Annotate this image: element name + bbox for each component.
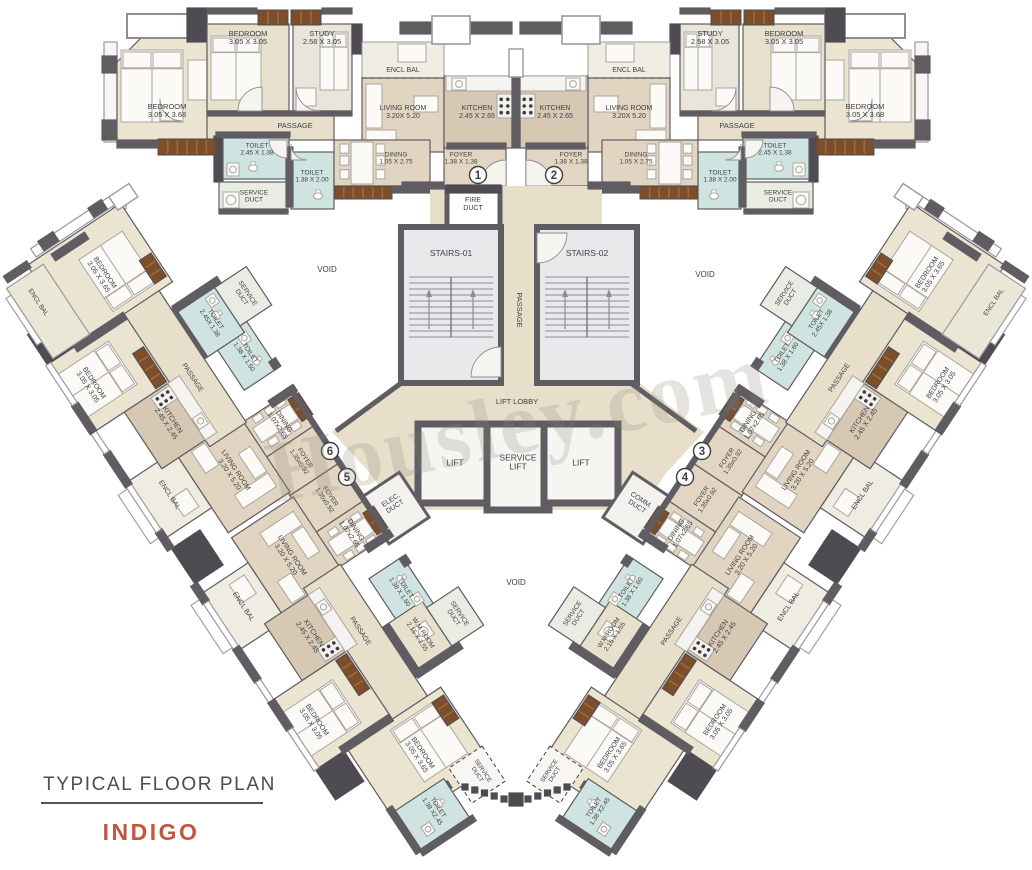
svg-text:1: 1 (475, 170, 482, 182)
svg-text:BEDROOM3.05 X 3.05: BEDROOM3.05 X 3.05 (229, 29, 268, 46)
svg-text:PASSAGE: PASSAGE (277, 121, 312, 130)
svg-text:FIREDUCT: FIREDUCT (463, 197, 483, 212)
svg-text:ENCL BAL: ENCL BAL (612, 67, 646, 74)
svg-text:KITCHEN2.45 X 2.65: KITCHEN2.45 X 2.65 (459, 105, 495, 120)
svg-text:BEDROOM3.05 X 3.05: BEDROOM3.05 X 3.05 (765, 29, 804, 46)
svg-text:PASSAGE: PASSAGE (719, 121, 754, 130)
svg-text:VOID: VOID (506, 578, 526, 587)
svg-text:STAIRS-02: STAIRS-02 (566, 248, 609, 258)
svg-text:STAIRS-01: STAIRS-01 (430, 248, 473, 258)
svg-text:TYPICAL FLOOR PLAN: TYPICAL FLOOR PLAN (43, 774, 276, 795)
svg-text:LIVING ROOM3.20X 5.20: LIVING ROOM3.20X 5.20 (606, 105, 653, 120)
svg-text:3: 3 (699, 446, 705, 458)
svg-text:4: 4 (682, 472, 689, 484)
svg-text:PASSAGE: PASSAGE (515, 292, 524, 327)
svg-text:BEDROOM3.05 X 3.68: BEDROOM3.05 X 3.68 (846, 102, 885, 119)
svg-text:ENCL BAL: ENCL BAL (386, 67, 420, 74)
svg-text:LIVING ROOM3.20X 5.20: LIVING ROOM3.20X 5.20 (380, 105, 427, 120)
svg-text:BEDROOM3.05 X 3.68: BEDROOM3.05 X 3.68 (148, 102, 187, 119)
svg-text:INDIGO: INDIGO (103, 819, 200, 845)
svg-text:KITCHEN2.45 X 2.65: KITCHEN2.45 X 2.65 (537, 105, 573, 120)
svg-text:VOID: VOID (317, 265, 337, 274)
svg-text:2: 2 (551, 170, 557, 182)
svg-text:VOID: VOID (695, 270, 715, 279)
